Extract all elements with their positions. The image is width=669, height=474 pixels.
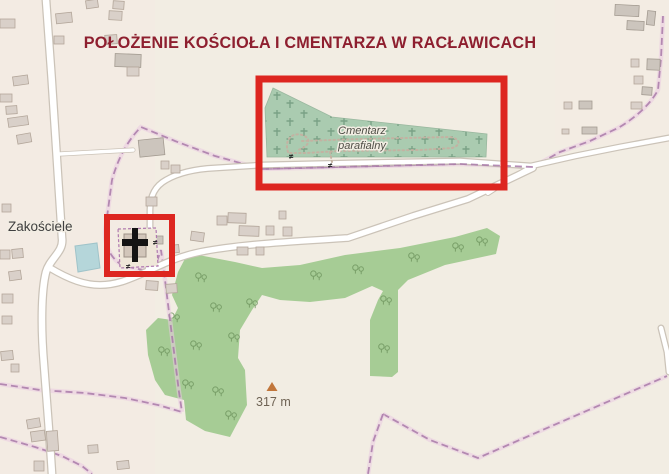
cemetery-label-line1: Cmentarz bbox=[338, 125, 386, 137]
place-label-zakoscicle: Zakościele bbox=[8, 219, 73, 234]
page-title: POŁOŻENIE KOŚCIOŁA I CMENTARZA W RACŁAWI… bbox=[84, 33, 536, 52]
pond bbox=[75, 243, 100, 272]
map-screenshot: ≠ ≠ Cmentarz parafialny ≠ ≠ 317 m Zakośc… bbox=[0, 0, 669, 474]
map-canvas: ≠ ≠ Cmentarz parafialny ≠ ≠ 317 m Zakośc… bbox=[0, 0, 669, 474]
church-area: ≠ ≠ bbox=[118, 228, 158, 271]
gate-icon: ≠ bbox=[153, 238, 158, 247]
cemetery-label-line2: parafialny bbox=[337, 140, 387, 152]
peak-elevation-label: 317 m bbox=[256, 395, 291, 409]
gate-icon: ≠ bbox=[289, 152, 294, 161]
gate-icon: ≠ bbox=[126, 262, 131, 271]
gate-icon: ≠ bbox=[328, 161, 333, 170]
